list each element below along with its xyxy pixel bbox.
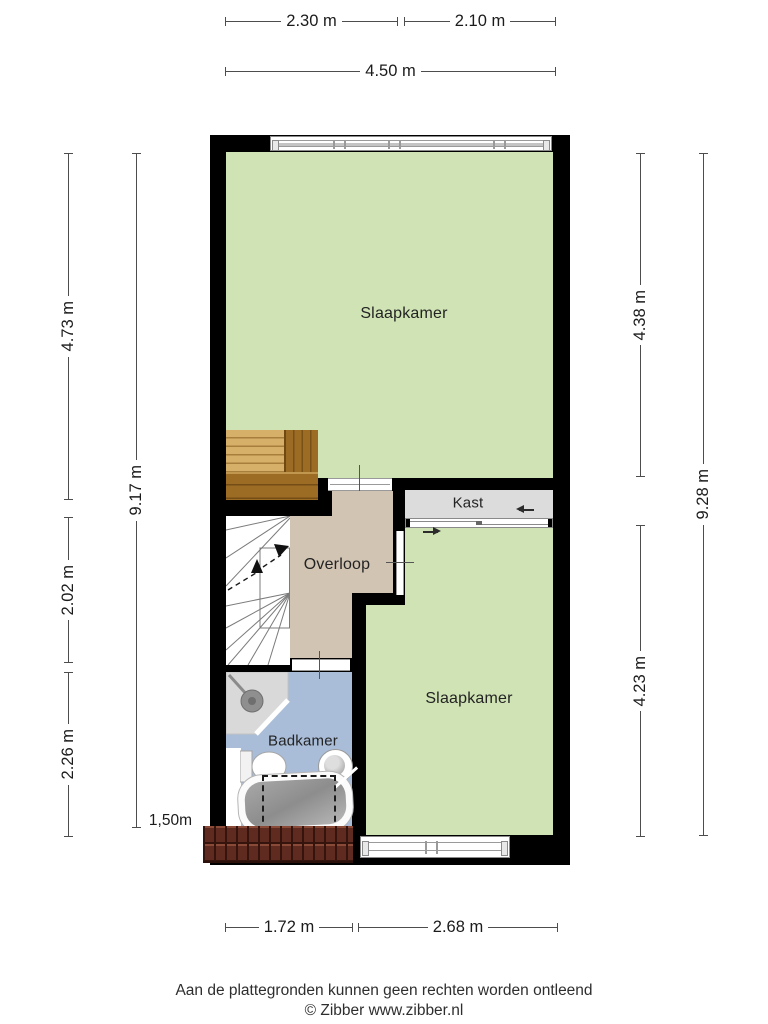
floorplan-canvas: 2.30 m 2.10 m 4.50 m 1.72 m 2.68 m 4.73 … [0,0,768,1024]
wood-stairs-landing-icon [226,472,318,500]
footer-disclaimer: Aan de plattegronden kunnen geen rechten… [0,980,768,1002]
dimension-label: 4.50 m [360,63,420,80]
room-slaapkamer-bottom [405,528,553,605]
dimension-label: 9.28 m [695,464,712,524]
dimension-top-2: 2.10 m [404,12,556,30]
room-overloop [332,491,393,593]
dimension-label: 2.10 m [450,13,510,30]
dimension-label: 2.30 m [281,13,341,30]
door-slaapkamer-bottom [396,531,404,595]
dimension-left-2: 2.02 m [59,517,77,663]
door-tick [386,562,414,563]
room-label-kast: Kast [453,495,484,512]
room-overloop-part [290,516,316,658]
dimension-right-2: 4.23 m [631,525,649,837]
dimension-label: 4.23 m [632,651,649,711]
dimension-bottom-1: 1.72 m [225,918,353,936]
dimension-left-1: 4.73 m [59,153,77,500]
dimension-label: 9.17 m [128,460,145,520]
slaapkamer-door-arrow-icon [423,527,445,536]
room-slaapkamer-bottom-part [366,605,553,835]
dimension-left-3: 2.26 m [59,672,77,837]
winder-stairs-icon [226,516,290,665]
dimension-left-total: 9.17 m [127,153,145,828]
dimension-bottom-2: 2.68 m [358,918,558,936]
room-label-slaapkamer-bottom: Slaapkamer [425,690,512,708]
door-opening-overloop [328,478,392,491]
footer-credit: © Zibber www.zibber.nl [0,1000,768,1022]
dimension-label: 2.26 m [60,724,77,784]
room-overloop-part [316,516,332,593]
dimension-right-total: 9.28 m [694,153,712,836]
dim-tick [397,17,398,26]
door-tick [359,465,360,491]
dimension-label: 4.73 m [60,296,77,356]
room-label-overloop: Overloop [304,556,371,574]
room-label-slaapkamer-top: Slaapkamer [360,305,447,323]
dimension-top-1: 2.30 m [225,12,398,30]
room-overloop-part [316,593,352,658]
door-tick [319,651,320,679]
wood-stairs-stringer-icon [286,430,318,472]
wood-stairs-treads-icon [226,430,286,472]
dimension-top-total: 4.50 m [225,62,556,80]
shower-icon [226,672,290,738]
window-bottom [360,836,510,858]
room-label-badkamer: Badkamer [268,733,338,750]
door-badkamer [292,659,350,671]
dimension-label: 2.02 m [60,560,77,620]
window-top [270,136,552,151]
dormer-outline-dashed [262,775,336,832]
dimension-label: 4.38 m [632,285,649,345]
dimension-label: 1.72 m [259,919,319,936]
kast-door-arrow-icon [512,505,534,514]
dimension-right-1: 4.38 m [631,153,649,477]
dimension-label: 2.68 m [428,919,488,936]
roof-tiles [203,826,353,863]
headroom-label: 1,50m [140,813,192,829]
